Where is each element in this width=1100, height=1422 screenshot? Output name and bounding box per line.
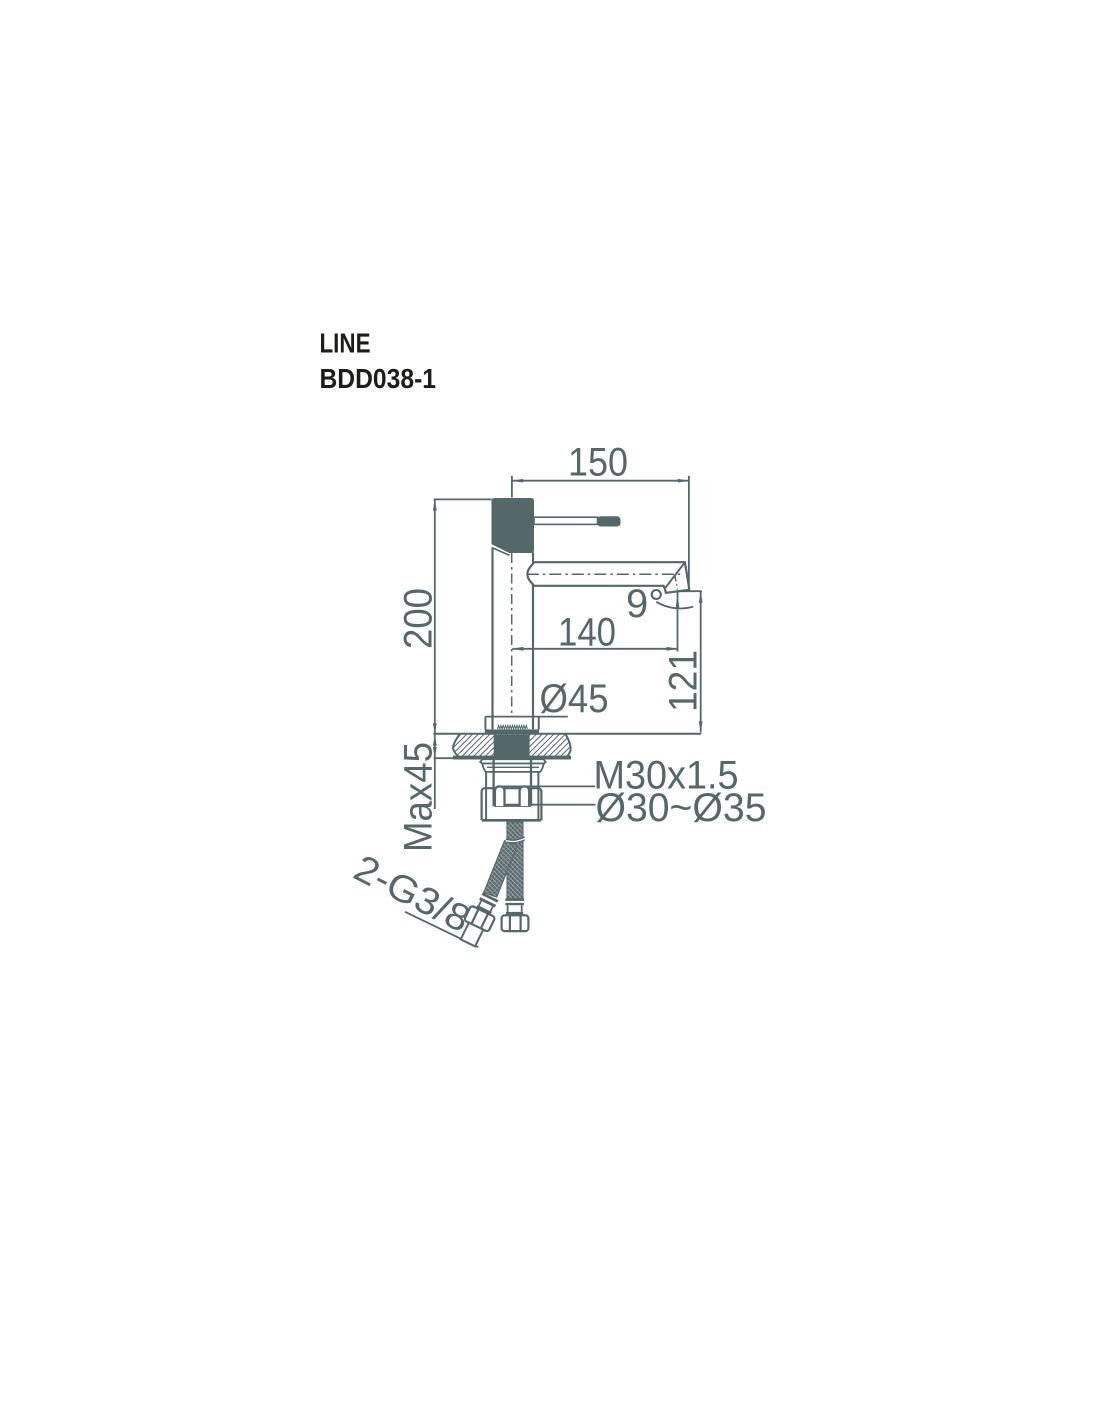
svg-text:121: 121	[662, 650, 706, 712]
svg-text:BDD038-1: BDD038-1	[320, 363, 437, 394]
svg-text:150: 150	[568, 440, 628, 484]
svg-text:Ø45: Ø45	[540, 677, 609, 721]
svg-text:Ø30~Ø35: Ø30~Ø35	[596, 786, 767, 830]
svg-text:LINE: LINE	[320, 328, 371, 359]
svg-text:200: 200	[397, 588, 441, 649]
svg-text:Max45: Max45	[397, 742, 441, 852]
svg-text:2-G3/8: 2-G3/8	[347, 847, 477, 941]
svg-text:9°: 9°	[626, 582, 664, 626]
svg-text:140: 140	[558, 610, 616, 654]
